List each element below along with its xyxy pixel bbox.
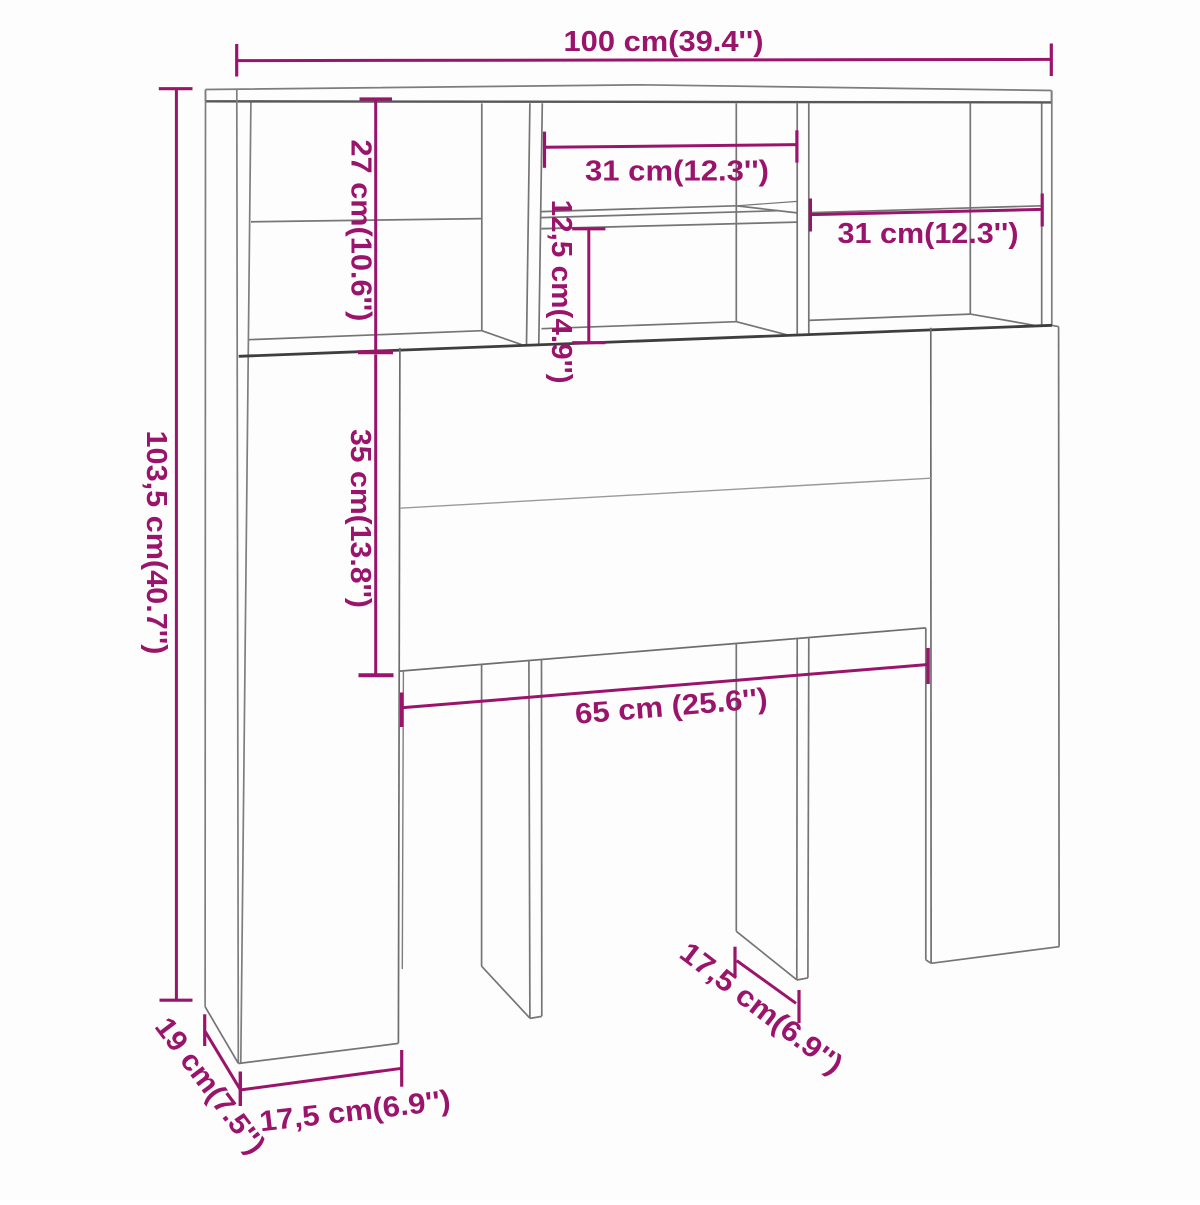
svg-text:100 cm(39.4''): 100 cm(39.4'') (564, 26, 764, 58)
svg-text:31 cm(12.3''): 31 cm(12.3'') (838, 218, 1019, 250)
svg-text:17,5 cm(6.9''): 17,5 cm(6.9'') (673, 937, 848, 1082)
svg-text:12,5 cm(4.9''): 12,5 cm(4.9'') (545, 200, 577, 384)
svg-text:19 cm(7.5''): 19 cm(7.5'') (148, 1012, 271, 1161)
svg-text:35 cm(13.8''): 35 cm(13.8'') (344, 429, 376, 608)
svg-text:27 cm(10.6''): 27 cm(10.6'') (345, 139, 377, 321)
svg-text:17,5 cm(6.9''): 17,5 cm(6.9'') (258, 1085, 452, 1139)
svg-text:31 cm(12.3''): 31 cm(12.3'') (585, 156, 769, 188)
svg-text:103,5 cm(40.7''): 103,5 cm(40.7'') (140, 431, 172, 655)
